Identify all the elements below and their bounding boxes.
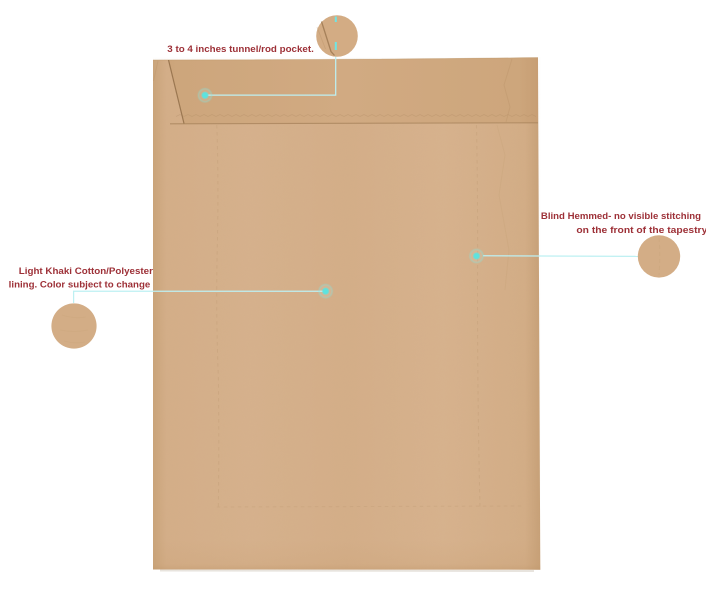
svg-text:Blind Hemmed- no visible stitc: Blind Hemmed- no visible stitching	[541, 211, 701, 222]
svg-text:lining. Color subject to chang: lining. Color subject to change	[9, 280, 151, 291]
svg-text:on the front of the tapestry.: on the front of the tapestry.	[576, 225, 706, 236]
svg-text:Light Khaki Cotton/Polyester: Light Khaki Cotton/Polyester	[19, 266, 153, 277]
svg-text:3 to 4 inches tunnel/rod pocke: 3 to 4 inches tunnel/rod pocket.	[167, 44, 313, 55]
